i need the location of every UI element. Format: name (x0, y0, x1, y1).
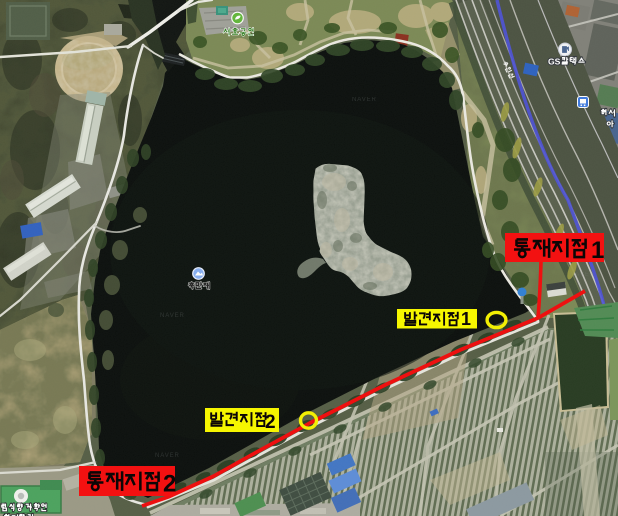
svg-text:1: 1 (461, 309, 471, 329)
svg-text:2: 2 (163, 471, 176, 498)
svg-text:2: 2 (265, 412, 276, 433)
svg-text:1: 1 (591, 237, 604, 264)
